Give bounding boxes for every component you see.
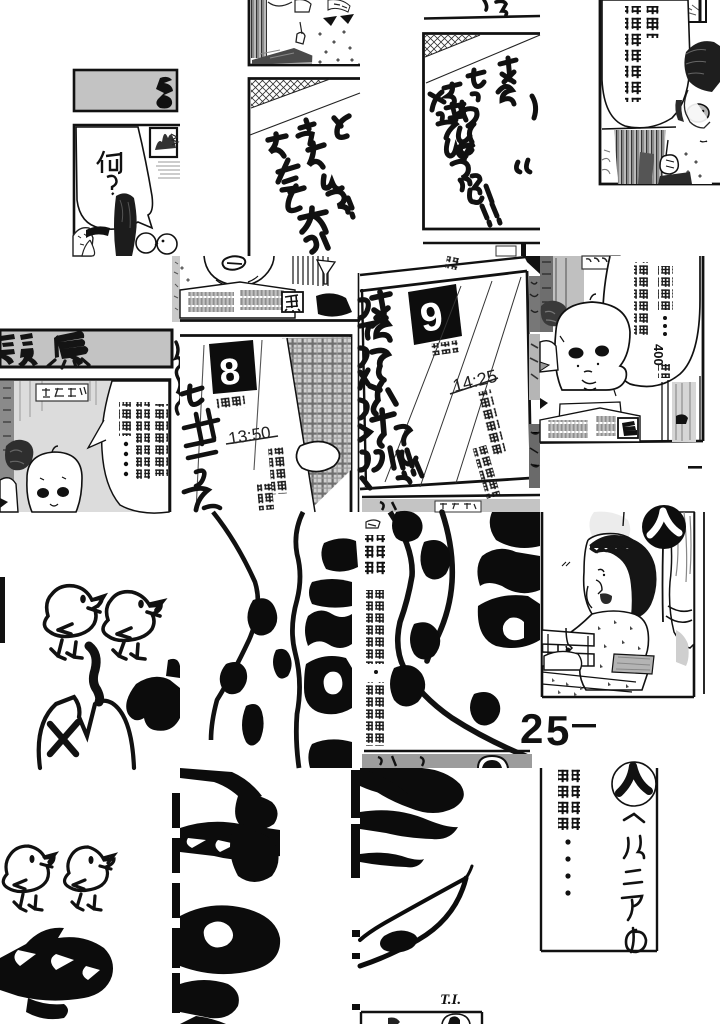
svg-text:2: 2 bbox=[520, 705, 543, 752]
svg-text:8: 8 bbox=[218, 350, 242, 393]
svg-text:T.I.: T.I. bbox=[440, 992, 461, 1008]
svg-text:400: 400 bbox=[651, 344, 666, 366]
svg-text:5: 5 bbox=[546, 707, 569, 754]
